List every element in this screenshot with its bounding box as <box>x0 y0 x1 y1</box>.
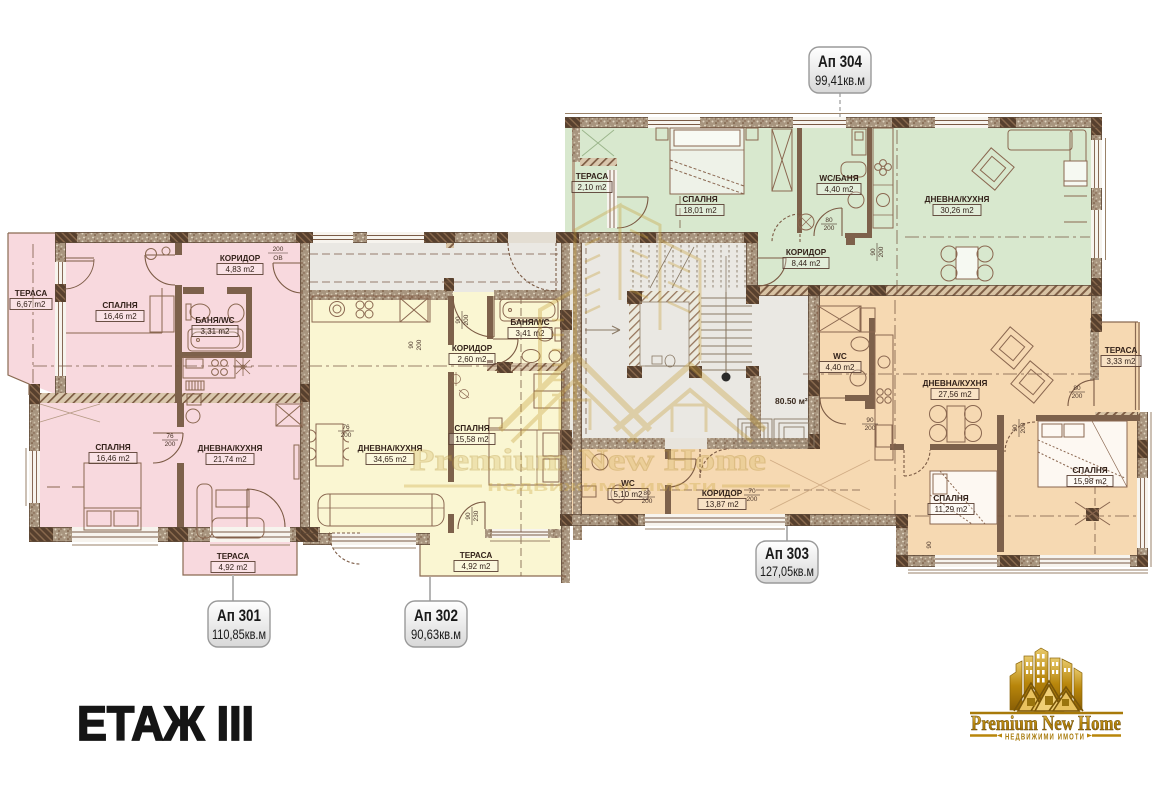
svg-text:4,92 m2: 4,92 m2 <box>219 563 248 572</box>
svg-text:90: 90 <box>465 512 472 520</box>
svg-text:СПАЛНЯ: СПАЛНЯ <box>682 195 717 204</box>
svg-text:200: 200 <box>824 225 835 232</box>
svg-text:СПАЛНЯ: СПАЛНЯ <box>454 424 489 433</box>
svg-text:90: 90 <box>408 341 415 349</box>
svg-text:90: 90 <box>455 316 462 324</box>
svg-text:4,83 m2: 4,83 m2 <box>226 265 255 274</box>
svg-text:WC: WC <box>833 352 847 361</box>
svg-text:КОРИДОР: КОРИДОР <box>786 248 827 257</box>
svg-text:4,92 m2: 4,92 m2 <box>462 562 491 571</box>
svg-text:ТЕРАСА: ТЕРАСА <box>15 289 48 298</box>
svg-text:4,40 m2: 4,40 m2 <box>826 363 855 372</box>
svg-text:ДНЕВНА/КУХНЯ: ДНЕВНА/КУХНЯ <box>925 195 990 204</box>
svg-text:2,60 m2: 2,60 m2 <box>458 355 487 364</box>
svg-text:Ап 303: Ап 303 <box>765 544 809 563</box>
svg-text:8,44 m2: 8,44 m2 <box>792 259 821 268</box>
svg-text:110,85кв.м: 110,85кв.м <box>212 626 266 642</box>
svg-text:80.50 м²: 80.50 м² <box>775 396 808 406</box>
svg-text:200: 200 <box>463 314 470 325</box>
svg-text:Premium New Home: Premium New Home <box>410 442 766 477</box>
svg-text:80: 80 <box>1073 385 1081 392</box>
svg-text:СПАЛНЯ: СПАЛНЯ <box>102 301 137 310</box>
svg-text:WC/БАНЯ: WC/БАНЯ <box>819 174 858 183</box>
svg-text:13,87 m2: 13,87 m2 <box>705 500 739 509</box>
svg-text:3,31 m2: 3,31 m2 <box>201 327 230 336</box>
svg-text:СПАЛНЯ: СПАЛНЯ <box>933 494 968 503</box>
svg-text:Ап 301: Ап 301 <box>217 606 261 625</box>
svg-text:недвижими имоти: недвижими имоти <box>487 478 717 495</box>
svg-text:ТЕРАСА: ТЕРАСА <box>460 551 493 560</box>
svg-text:4,40 m2: 4,40 m2 <box>825 185 854 194</box>
svg-text:ТЕРАСА: ТЕРАСА <box>1105 346 1138 355</box>
svg-text:6,67 m2: 6,67 m2 <box>17 300 46 309</box>
svg-text:СПАЛНЯ: СПАЛНЯ <box>95 443 130 452</box>
svg-text:16,46 m2: 16,46 m2 <box>96 454 130 463</box>
svg-text:16,46 m2: 16,46 m2 <box>103 312 137 321</box>
svg-text:11,29 m2: 11,29 m2 <box>935 505 968 514</box>
svg-text:2,10 m2: 2,10 m2 <box>578 183 607 192</box>
svg-text:Ап 302: Ап 302 <box>414 606 458 625</box>
svg-text:200: 200 <box>341 432 352 439</box>
svg-text:ТЕРАСА: ТЕРАСА <box>217 552 250 561</box>
svg-text:3,33 m2: 3,33 m2 <box>1107 357 1136 366</box>
svg-text:ТЕРАСА: ТЕРАСА <box>576 172 609 181</box>
svg-text:Ап 304: Ап 304 <box>818 52 862 71</box>
svg-text:230: 230 <box>473 510 480 521</box>
svg-text:127,05кв.м: 127,05кв.м <box>760 563 814 579</box>
svg-text:ДНЕВНА/КУХНЯ: ДНЕВНА/КУХНЯ <box>923 379 988 388</box>
svg-text:90: 90 <box>1012 424 1019 432</box>
svg-text:90: 90 <box>870 248 877 256</box>
svg-text:НЕДВИЖИМИ ИМОТИ: НЕДВИЖИМИ ИМОТИ <box>1005 733 1085 742</box>
svg-text:76: 76 <box>166 433 174 440</box>
svg-text:200: 200 <box>1072 393 1083 400</box>
svg-text:34,65 m2: 34,65 m2 <box>373 455 407 464</box>
svg-text:200: 200 <box>273 246 284 253</box>
svg-text:200: 200 <box>165 441 176 448</box>
svg-text:200: 200 <box>416 339 423 350</box>
svg-text:200: 200 <box>642 498 653 505</box>
svg-text:БАНЯ/WC: БАНЯ/WC <box>195 316 234 325</box>
svg-text:СПАЛНЯ: СПАЛНЯ <box>1072 466 1107 475</box>
svg-text:80: 80 <box>825 217 833 224</box>
svg-text:ЕТАЖ III: ЕТАЖ III <box>77 698 254 751</box>
svg-text:30,26 m2: 30,26 m2 <box>940 206 974 215</box>
svg-text:27,56 m2: 27,56 m2 <box>938 390 972 399</box>
svg-text:200: 200 <box>865 425 876 432</box>
svg-text:КОРИДОР: КОРИДОР <box>220 254 261 263</box>
svg-text:70: 70 <box>748 488 756 495</box>
svg-text:99,41кв.м: 99,41кв.м <box>815 72 865 88</box>
svg-text:200: 200 <box>747 496 758 503</box>
svg-text:15,98 m2: 15,98 m2 <box>1073 477 1107 486</box>
svg-text:OB: OB <box>273 255 282 262</box>
svg-text:ДНЕВНА/КУХНЯ: ДНЕВНА/КУХНЯ <box>198 444 263 453</box>
svg-text:90: 90 <box>926 541 933 549</box>
svg-text:БАНЯ/WC: БАНЯ/WC <box>510 318 549 327</box>
svg-text:90: 90 <box>866 417 874 424</box>
svg-text:18,01 m2: 18,01 m2 <box>683 206 717 215</box>
svg-text:90,63кв.м: 90,63кв.м <box>411 626 461 642</box>
svg-text:200: 200 <box>1020 422 1027 433</box>
svg-text:Premium New Home: Premium New Home <box>971 711 1121 735</box>
svg-text:21,74 m2: 21,74 m2 <box>213 455 247 464</box>
svg-text:76: 76 <box>342 424 350 431</box>
svg-text:КОРИДОР: КОРИДОР <box>452 344 493 353</box>
svg-text:200: 200 <box>878 246 885 257</box>
